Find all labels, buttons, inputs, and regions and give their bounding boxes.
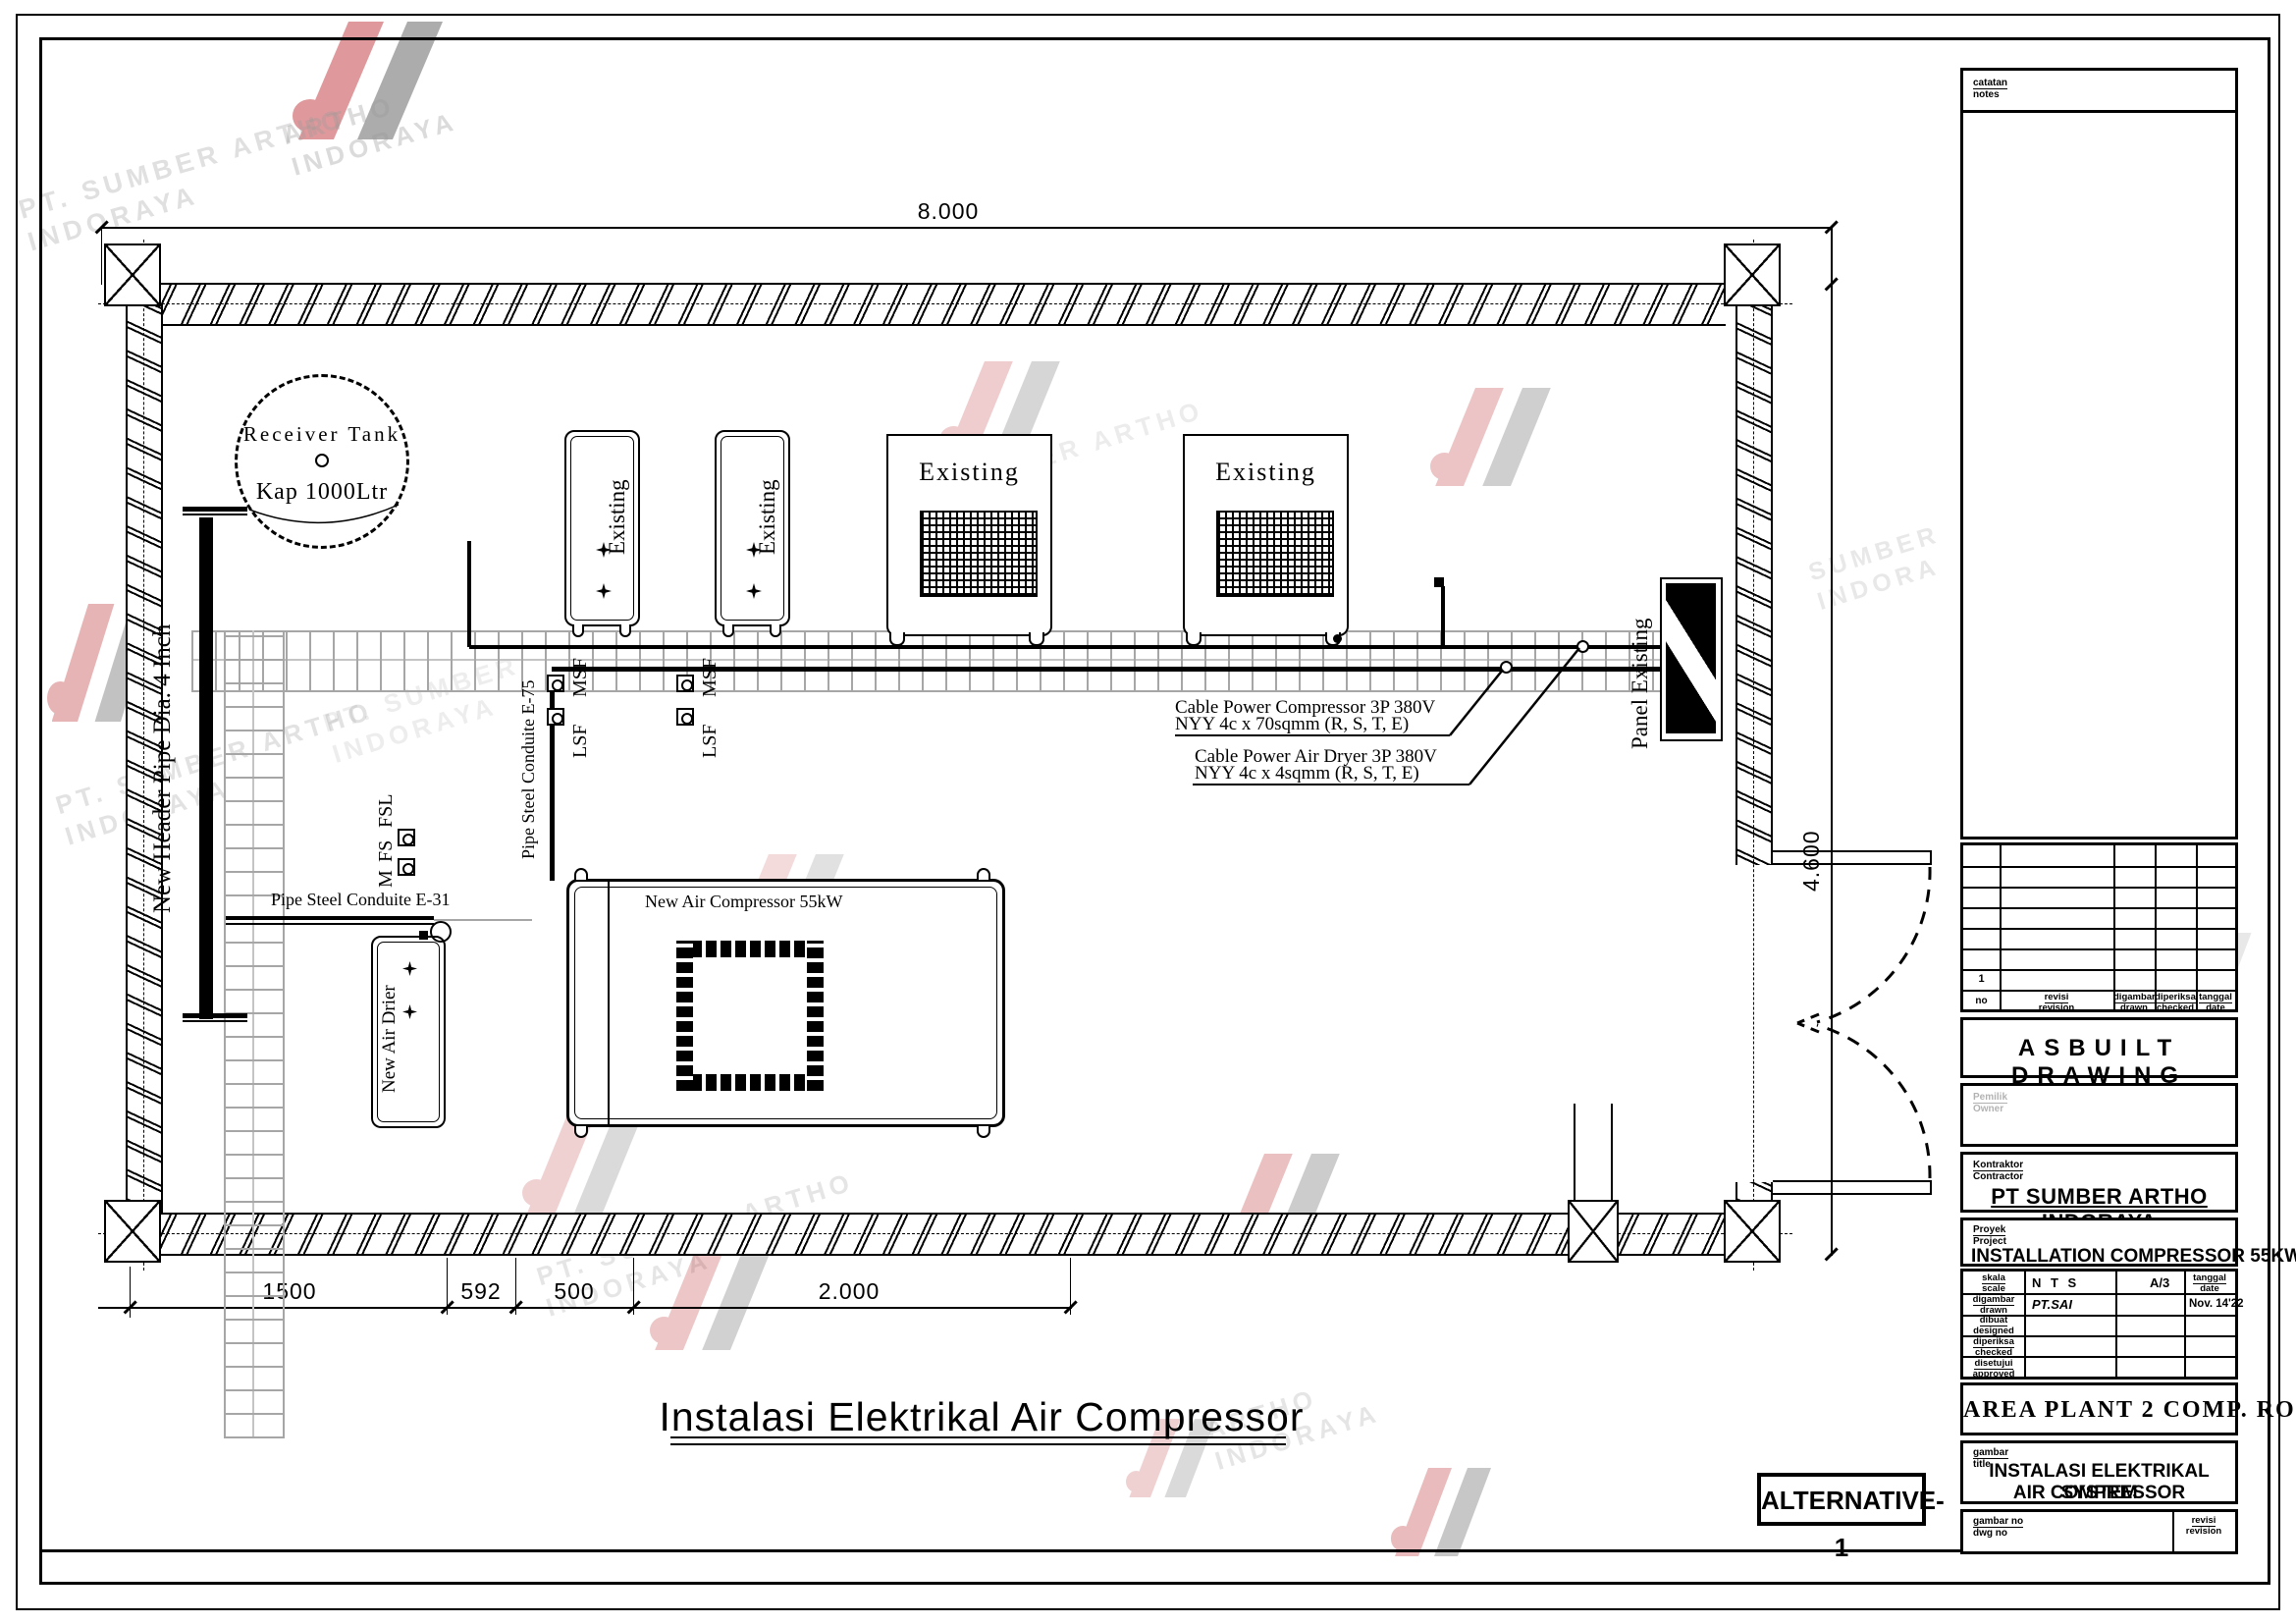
- unit-foot: [1029, 632, 1044, 646]
- dwgno-rev-tag: revisirevision: [2172, 1516, 2235, 1537]
- lsf-label: LSF: [699, 703, 721, 758]
- header-pipe-cap: [183, 507, 247, 512]
- wall-bottom: [161, 1213, 1726, 1256]
- connection-dot: [1434, 577, 1444, 587]
- header-pipe: [199, 517, 213, 1019]
- unit-foot: [572, 624, 584, 637]
- header-pipe-label: New Header Pipe Dia. 4 Inch: [149, 461, 177, 913]
- msf-label: MSF: [699, 646, 721, 697]
- leader-node: [1500, 661, 1513, 674]
- compressor-mesh: [676, 941, 824, 957]
- fs-label: FS: [375, 831, 398, 862]
- cable-dryer-line2: NYY 4c x 4sqmm (R, S, T, E): [1195, 765, 1437, 782]
- approval-table: skalascale N T S A/3 tanggaldate digamba…: [1960, 1269, 2238, 1380]
- dwgno-box: gambar nodwg no revisirevision: [1960, 1509, 2238, 1554]
- panel-existing-label: Panel Existing: [1628, 577, 1653, 749]
- callout-underline: [1193, 784, 1469, 785]
- revision-table: 1 no revisirevision digambardrawn diperi…: [1960, 842, 2238, 1012]
- header-pipe-cap: [183, 1020, 247, 1022]
- drier-label: New Air Drier: [379, 946, 400, 1093]
- compressor-mesh: [676, 941, 693, 1091]
- drawn-by: PT.SAI: [2032, 1297, 2072, 1312]
- dwgno-tag-en: dwg no: [1973, 1528, 2007, 1539]
- checked-tag: diperiksachecked: [1963, 1337, 2024, 1358]
- mount-cross-icon: [746, 542, 762, 558]
- door-jamb-bottom: [1773, 1180, 1932, 1195]
- area-box: AREA PLANT 2 COMP. ROOM: [1960, 1382, 2238, 1435]
- switch-msf: [547, 675, 564, 692]
- cable-air-dryer: [469, 645, 1716, 649]
- column-top-right: [1724, 244, 1781, 306]
- dim-right-label: 4.600: [1798, 774, 1825, 892]
- cable-tray-vertical: [224, 630, 285, 1438]
- wall-centerline-bottom: [98, 1233, 1792, 1234]
- column-bottom-right: [1724, 1200, 1781, 1263]
- mount-cross-icon: [402, 961, 417, 976]
- leader-node: [1576, 640, 1589, 653]
- dim-ext: [130, 1267, 131, 1318]
- unit-foot: [722, 624, 734, 637]
- drawing-title: Instalasi Elektrikal Air Compressor: [636, 1394, 1327, 1440]
- checked-header: diperiksachecked: [2155, 993, 2196, 1013]
- existing-unit-large-1: Existing: [886, 434, 1052, 636]
- tank-center-mark: [315, 454, 329, 467]
- project-name: INSTALLATION COMPRESSOR 55KW: [1971, 1246, 2296, 1268]
- scale-tag-en: scale: [1982, 1283, 2005, 1294]
- existing-label: Existing: [888, 458, 1050, 487]
- mount-cross-icon: [402, 1004, 417, 1019]
- new-air-compressor: New Air Compressor 55kW: [566, 879, 1005, 1127]
- contractor-label-id: Kontraktor: [1973, 1160, 2023, 1171]
- wall-centerline-top: [98, 303, 1792, 304]
- inner-divider: [608, 882, 610, 1124]
- wall-centerline-left: [143, 240, 144, 1271]
- dim-bottom-label: 592: [447, 1278, 515, 1305]
- existing-label: Existing: [755, 442, 780, 555]
- wall-centerline-right: [1753, 240, 1754, 1271]
- switch-m: [398, 858, 415, 876]
- existing-unit-small-1: Existing: [564, 430, 640, 626]
- asbuilt-label: ASBUILT DRAWING: [1963, 1035, 2235, 1090]
- existing-label: Existing: [605, 442, 630, 555]
- owner-label-id: Pemilik: [1973, 1092, 2007, 1104]
- drawn-header-en: drawn: [2120, 1002, 2148, 1013]
- asbuilt-box: ASBUILT DRAWING: [1960, 1017, 2238, 1078]
- column-bottom-mid: [1568, 1200, 1619, 1263]
- unit-foot: [770, 624, 781, 637]
- checked-tag-en: checked: [1975, 1347, 2012, 1358]
- sheet-title-box: gambartitle INSTALASI ELEKTRIKAL SYSTEM …: [1960, 1440, 2238, 1504]
- dim-ext: [515, 1258, 516, 1315]
- designed-tag-en: designed: [1973, 1326, 2014, 1336]
- date-tag: tanggaldate: [2184, 1273, 2235, 1294]
- connection-dot: [419, 931, 428, 940]
- area-label: AREA PLANT 2 COMP. ROOM: [1963, 1397, 2235, 1424]
- scale-tag: skalascale: [1963, 1273, 2024, 1294]
- switch-lsf: [676, 708, 694, 726]
- rev-row-1: 1: [1963, 974, 2000, 984]
- sheet-tag-id: gambar: [1973, 1447, 2008, 1459]
- rev-header-en: revision: [2039, 1002, 2074, 1013]
- column-top-left: [104, 244, 161, 306]
- conduit-e31-label: Pipe Steel Conduite E-31: [271, 890, 450, 910]
- cable-compressor: [552, 667, 1716, 672]
- dim-line-right: [1831, 227, 1833, 1256]
- sheet-title-line2: AIR COMPRESSOR: [1963, 1483, 2235, 1504]
- dwgno-tag-id: gambar no: [1973, 1516, 2023, 1528]
- designed-tag: dibuatdesigned: [1963, 1316, 2024, 1336]
- compressor-mesh: [807, 941, 824, 1091]
- door-recess-line: [1611, 1104, 1613, 1202]
- dwgno-rev-en: revision: [2186, 1526, 2221, 1537]
- conduit-e75: [550, 676, 555, 881]
- owner-label-en: Owner: [1973, 1104, 2003, 1114]
- header-pipe-cap: [183, 514, 247, 515]
- inner-border: [39, 37, 2270, 1585]
- drawn-header: digambardrawn: [2113, 993, 2155, 1013]
- header-pipe-cap: [183, 1013, 247, 1018]
- receiver-tank-label: Receiver Tank: [235, 422, 409, 447]
- footer-line: [39, 1549, 1960, 1552]
- owner-box: PemilikOwner: [1960, 1083, 2238, 1147]
- switch-lsf: [547, 708, 564, 726]
- new-air-drier: New Air Drier: [371, 936, 446, 1128]
- drawing-sheet: ARTHOINDORAYA PT. SUMBER ARTHOINDORAYA P…: [0, 0, 2296, 1624]
- paper-size: A/3: [2150, 1275, 2169, 1290]
- cable-riser: [1441, 586, 1445, 647]
- notes-label-en: notes: [1973, 89, 2000, 100]
- drawing-title-underline: [670, 1436, 1286, 1445]
- cable-compressor-callout: Cable Power Compressor 3P 380V NYY 4c x …: [1175, 699, 1435, 732]
- notes-header: catatannotes: [1963, 71, 2235, 113]
- date-header: tanggaldate: [2196, 993, 2235, 1013]
- rev-header: revisirevision: [2000, 993, 2113, 1013]
- door-recess-line: [1574, 1104, 1575, 1202]
- drawn-tag: digambardrawn: [1963, 1295, 2024, 1316]
- dim-bottom-label: 500: [540, 1278, 609, 1305]
- mount-cross-icon: [746, 583, 762, 599]
- approved-tag: disetujuiapproved: [1963, 1359, 2024, 1380]
- panel-existing: [1660, 577, 1723, 741]
- conduit-e31-ext: [434, 919, 532, 921]
- vent-grid: [1216, 511, 1334, 597]
- unit-tab: [977, 868, 990, 880]
- date-tag-en: date: [2200, 1283, 2219, 1294]
- dim-line-top: [101, 227, 1833, 229]
- connection-dot: [1333, 634, 1342, 643]
- dim-top-label: 8.000: [909, 198, 988, 225]
- existing-unit-small-2: Existing: [715, 430, 790, 626]
- contractor-box: KontraktorContractor PT SUMBER ARTHO IND…: [1960, 1152, 2238, 1213]
- compressor-label: New Air Compressor 55kW: [645, 892, 842, 912]
- switch-msf: [676, 675, 694, 692]
- vent-grid: [920, 511, 1038, 597]
- dim-ext: [633, 1258, 634, 1315]
- alternative-badge: ALTERNATIVE-1: [1757, 1473, 1926, 1526]
- notes-box: catatannotes: [1960, 68, 2238, 839]
- column-bottom-left: [104, 1200, 161, 1263]
- mount-cross-icon: [596, 583, 612, 599]
- conduit-e31: [226, 916, 434, 920]
- dim-ext: [1070, 1258, 1071, 1315]
- approved-tag-en: approved: [1973, 1369, 2015, 1380]
- fsl-label: FSL: [375, 783, 398, 828]
- wall-top: [161, 283, 1726, 326]
- cable-compressor-line2: NYY 4c x 70sqmm (R, S, T, E): [1175, 716, 1435, 732]
- mount-cross-icon: [596, 542, 612, 558]
- unit-foot: [619, 624, 631, 637]
- cable-tray-horizontal: [191, 630, 1720, 692]
- m-label: M: [375, 866, 398, 888]
- date-header-en: date: [2206, 1002, 2225, 1013]
- cable-dryer-callout: Cable Power Air Dryer 3P 380V NYY 4c x 4…: [1195, 748, 1437, 782]
- wall-right-upper: [1735, 304, 1773, 865]
- existing-unit-large-2: Existing: [1183, 434, 1349, 636]
- checked-header-en: checked: [2157, 1002, 2194, 1013]
- cable-riser: [467, 541, 471, 647]
- unit-foot: [889, 632, 905, 646]
- dim-bottom-label: 2.000: [805, 1278, 893, 1305]
- compressor-mesh: [676, 1074, 824, 1091]
- existing-label: Existing: [1185, 458, 1347, 487]
- drawn-date: Nov. 14'22: [2189, 1298, 2244, 1310]
- scale-value: N T S: [2032, 1275, 2079, 1290]
- msf-label: MSF: [569, 646, 592, 697]
- lsf-label: LSF: [569, 703, 592, 758]
- conduit-e31: [226, 923, 434, 925]
- switch-fs: [398, 829, 415, 846]
- project-box: ProyekProject INSTALLATION COMPRESSOR 55…: [1960, 1218, 2238, 1267]
- panel-symbol: [1666, 583, 1716, 733]
- conduit-e75-label: Pipe Steel Conduite E-75: [518, 628, 539, 859]
- notes-label-id: catatan: [1973, 78, 2007, 89]
- dim-ext: [101, 228, 102, 285]
- unit-tab: [574, 868, 588, 880]
- contractor-label-en: Contractor: [1973, 1171, 2023, 1182]
- door-jamb-top: [1773, 850, 1932, 865]
- callout-underline: [1175, 734, 1450, 736]
- project-label-id: Proyek: [1973, 1224, 2005, 1236]
- receiver-tank-capacity: Kap 1000Ltr: [235, 479, 409, 506]
- unit-foot: [1186, 632, 1201, 646]
- rev-no-header: no: [1963, 997, 2000, 1006]
